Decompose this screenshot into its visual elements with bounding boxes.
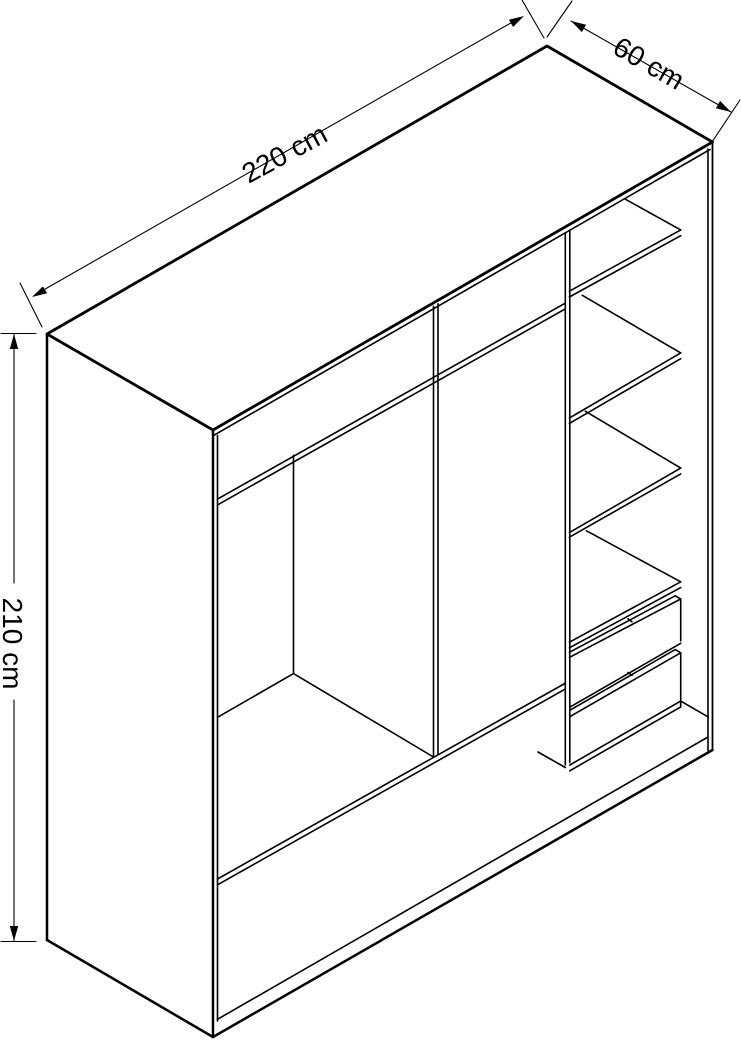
svg-text:210 cm: 210 cm <box>0 598 28 690</box>
